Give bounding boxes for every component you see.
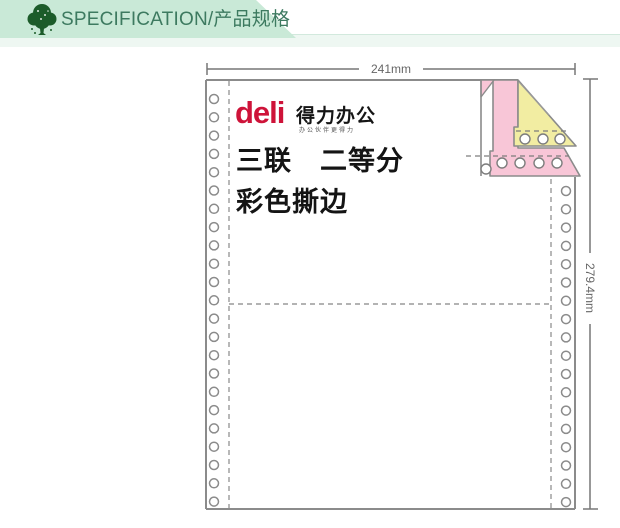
feed-hole	[210, 479, 219, 488]
feed-hole	[210, 223, 219, 232]
feed-hole	[562, 205, 571, 214]
feed-hole	[210, 259, 219, 268]
feed-hole	[562, 241, 571, 250]
feed-hole	[210, 314, 219, 323]
spec-text-tear-edge: 彩色撕边	[236, 180, 348, 219]
height-dimension-label: 279.4mm	[583, 253, 597, 323]
feed-hole	[555, 134, 565, 144]
feed-hole	[210, 351, 219, 360]
feed-hole	[210, 168, 219, 177]
feed-hole	[210, 387, 219, 396]
deli-logo: deli	[235, 95, 284, 131]
feed-hole	[210, 95, 219, 104]
feed-hole	[210, 461, 219, 470]
feed-hole	[515, 158, 525, 168]
paper-spec-diagram	[0, 0, 620, 528]
feed-hole	[210, 497, 219, 506]
feed-hole	[562, 351, 571, 360]
feed-hole	[497, 158, 507, 168]
feed-hole	[538, 134, 548, 144]
feed-hole	[562, 187, 571, 196]
feed-hole	[210, 406, 219, 415]
feed-hole	[210, 442, 219, 451]
deli-logo-chinese: 得力办公	[296, 101, 376, 128]
feed-hole	[562, 333, 571, 342]
tree-icon	[26, 2, 58, 36]
feed-hole	[210, 278, 219, 287]
feed-hole	[562, 296, 571, 305]
feed-hole	[210, 241, 219, 250]
feed-hole	[562, 370, 571, 379]
section-title: SPECIFICATION/产品规格	[61, 0, 290, 38]
width-dimension-label: 241mm	[359, 62, 423, 76]
deli-logo-tagline: 办公伙伴更得力	[299, 125, 355, 134]
feed-hole	[210, 113, 219, 122]
feed-hole	[562, 388, 571, 397]
feed-holes-left	[210, 95, 219, 507]
feed-hole	[562, 479, 571, 488]
feed-hole	[520, 134, 530, 144]
feed-hole	[562, 406, 571, 415]
feed-hole	[210, 131, 219, 140]
feed-hole	[562, 223, 571, 232]
feed-hole	[210, 369, 219, 378]
feed-hole	[562, 461, 571, 470]
feed-hole	[210, 424, 219, 433]
feed-hole	[210, 204, 219, 213]
feed-hole	[210, 186, 219, 195]
feed-hole	[562, 443, 571, 452]
feed-hole	[552, 158, 562, 168]
feed-hole	[562, 424, 571, 433]
feed-hole	[562, 498, 571, 507]
feed-hole	[210, 149, 219, 158]
spec-text-ply: 三联 二等分	[236, 139, 404, 178]
feed-hole	[562, 278, 571, 287]
feed-hole	[534, 158, 544, 168]
feed-hole	[210, 296, 219, 305]
feed-hole	[481, 164, 491, 174]
feed-hole	[562, 315, 571, 324]
feed-hole	[210, 332, 219, 341]
feed-hole	[562, 260, 571, 269]
